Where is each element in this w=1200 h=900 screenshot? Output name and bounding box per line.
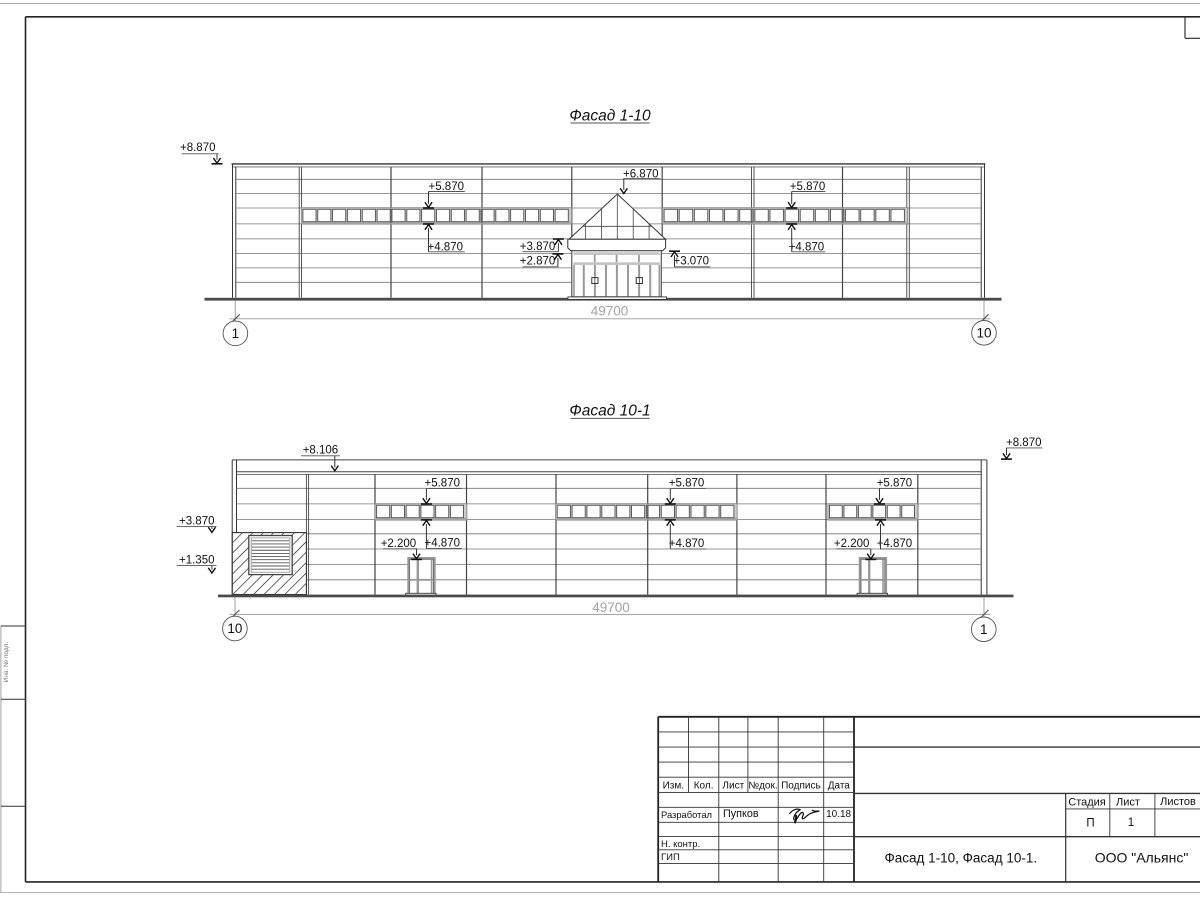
svg-text:+4.870: +4.870 <box>669 538 705 550</box>
svg-text:49700: 49700 <box>591 304 629 319</box>
svg-text:Изм.: Изм. <box>663 781 684 792</box>
svg-text:Лист: Лист <box>1116 796 1140 808</box>
svg-text:Стадия: Стадия <box>1068 796 1106 808</box>
svg-text:Кол.: Кол. <box>694 781 714 792</box>
svg-text:10: 10 <box>976 325 991 340</box>
svg-text:Фасад 10-1: Фасад 10-1 <box>569 402 650 419</box>
svg-text:+1.350: +1.350 <box>179 554 215 566</box>
svg-text:1: 1 <box>232 326 240 341</box>
svg-text:1: 1 <box>980 622 988 637</box>
svg-text:+5.870: +5.870 <box>877 477 913 489</box>
svg-text:49700: 49700 <box>592 600 630 615</box>
svg-text:+5.870: +5.870 <box>425 477 461 489</box>
svg-text:10.18: 10.18 <box>826 809 851 820</box>
svg-text:Фасад 1-10, Фасад 10-1.: Фасад 1-10, Фасад 10-1. <box>884 850 1037 865</box>
svg-text:+8.106: +8.106 <box>303 444 339 456</box>
svg-text:№док.: №док. <box>748 781 777 792</box>
svg-text:+2.870: +2.870 <box>520 255 556 267</box>
svg-text:Листов: Листов <box>1160 796 1196 808</box>
svg-text:Разработал: Разработал <box>661 809 712 820</box>
svg-text:+5.870: +5.870 <box>669 477 705 489</box>
svg-text:1: 1 <box>1128 817 1134 829</box>
svg-text:+8.870: +8.870 <box>180 142 216 154</box>
svg-text:+3.870: +3.870 <box>179 515 215 527</box>
svg-text:Лист: Лист <box>722 781 744 792</box>
svg-text:10: 10 <box>227 621 242 636</box>
svg-text:Н. контр.: Н. контр. <box>661 839 700 850</box>
svg-text:Инв. № подл.: Инв. № подл. <box>3 642 10 683</box>
svg-text:П: П <box>1086 817 1094 829</box>
svg-text:ООО "Альянс": ООО "Альянс" <box>1095 849 1189 865</box>
svg-text:Пупков: Пупков <box>723 808 759 820</box>
svg-text:Подпись: Подпись <box>781 781 821 792</box>
svg-text:+4.870: +4.870 <box>877 538 913 550</box>
svg-text:ГИП: ГИП <box>661 852 680 863</box>
svg-text:Фасад 1-10: Фасад 1-10 <box>569 107 651 124</box>
svg-text:+4.870: +4.870 <box>425 537 461 549</box>
svg-text:+3.870: +3.870 <box>520 241 556 253</box>
svg-text:+2.200: +2.200 <box>834 538 870 550</box>
svg-text:Дата: Дата <box>828 781 851 792</box>
svg-text:+3.070: +3.070 <box>674 255 710 267</box>
svg-text:+8.870: +8.870 <box>1006 437 1042 449</box>
svg-text:+2.200: +2.200 <box>381 538 417 550</box>
